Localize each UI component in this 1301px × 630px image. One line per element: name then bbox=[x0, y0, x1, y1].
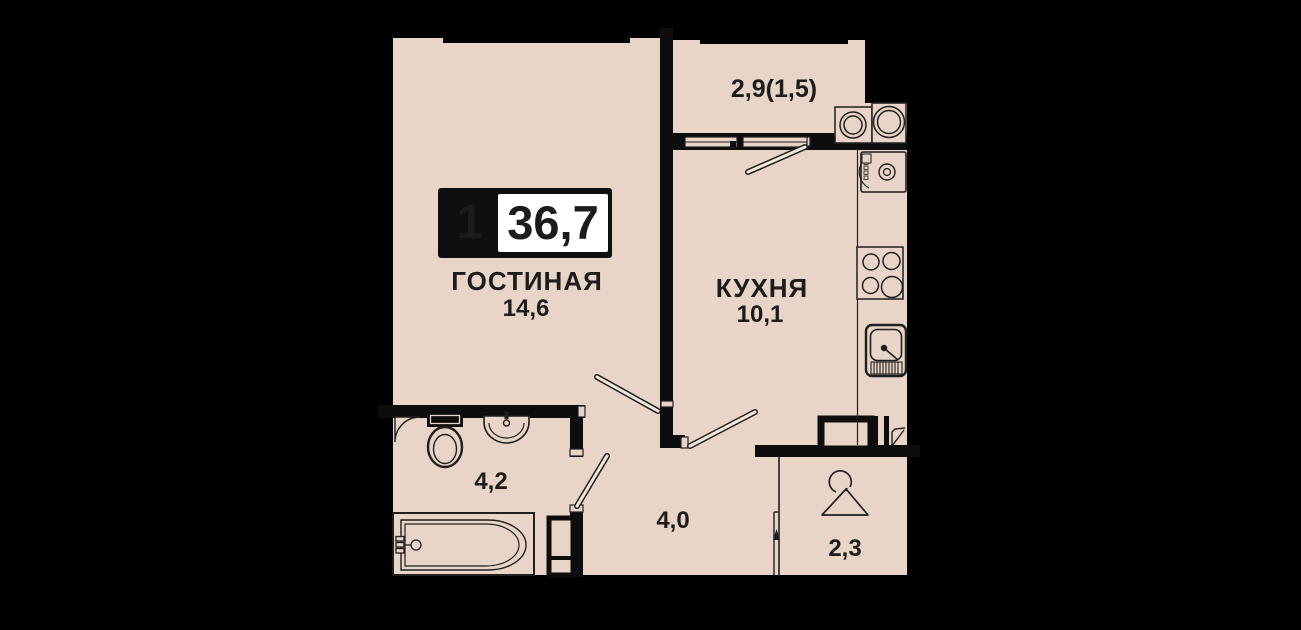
balcony-glazing bbox=[685, 137, 807, 147]
vent-shaft bbox=[547, 518, 575, 575]
badge-total-area: 36,7 bbox=[507, 196, 598, 249]
kitchen-area: 10,1 bbox=[737, 301, 784, 328]
window-tick bbox=[730, 141, 736, 147]
sink-drainer bbox=[871, 362, 902, 374]
living-room-name: ГОСТИНАЯ bbox=[451, 266, 603, 296]
floor-plan: 1 36,7 ГОСТИНАЯ 14,6 КУХНЯ 10,1 2,9(1,5)… bbox=[0, 0, 1301, 630]
balcony-area: 2,9(1,5) bbox=[731, 75, 817, 103]
fridge-icon bbox=[859, 152, 906, 192]
wall-living-kitchen bbox=[660, 28, 673, 435]
wall-living-bathroom bbox=[378, 405, 585, 418]
hallway-area: 4,0 bbox=[656, 507, 689, 534]
wardrobe-area: 2,3 bbox=[828, 535, 861, 562]
floor-areas bbox=[393, 38, 907, 575]
balcony-unit-icon bbox=[835, 103, 906, 143]
bathroom-area: 4,2 bbox=[474, 468, 507, 495]
kitchen-sink-icon bbox=[866, 325, 906, 376]
kitchen-name: КУХНЯ bbox=[716, 273, 809, 303]
area-badge: 1 36,7 bbox=[438, 188, 612, 258]
toilet-icon bbox=[427, 412, 463, 467]
living-room-area: 14,6 bbox=[503, 295, 550, 322]
stove-icon bbox=[857, 247, 903, 299]
bathtub-icon bbox=[393, 513, 534, 575]
floor-plan-canvas: 1 36,7 ГОСТИНАЯ 14,6 КУХНЯ 10,1 2,9(1,5)… bbox=[0, 0, 1301, 630]
badge-room-count: 1 bbox=[457, 196, 484, 249]
